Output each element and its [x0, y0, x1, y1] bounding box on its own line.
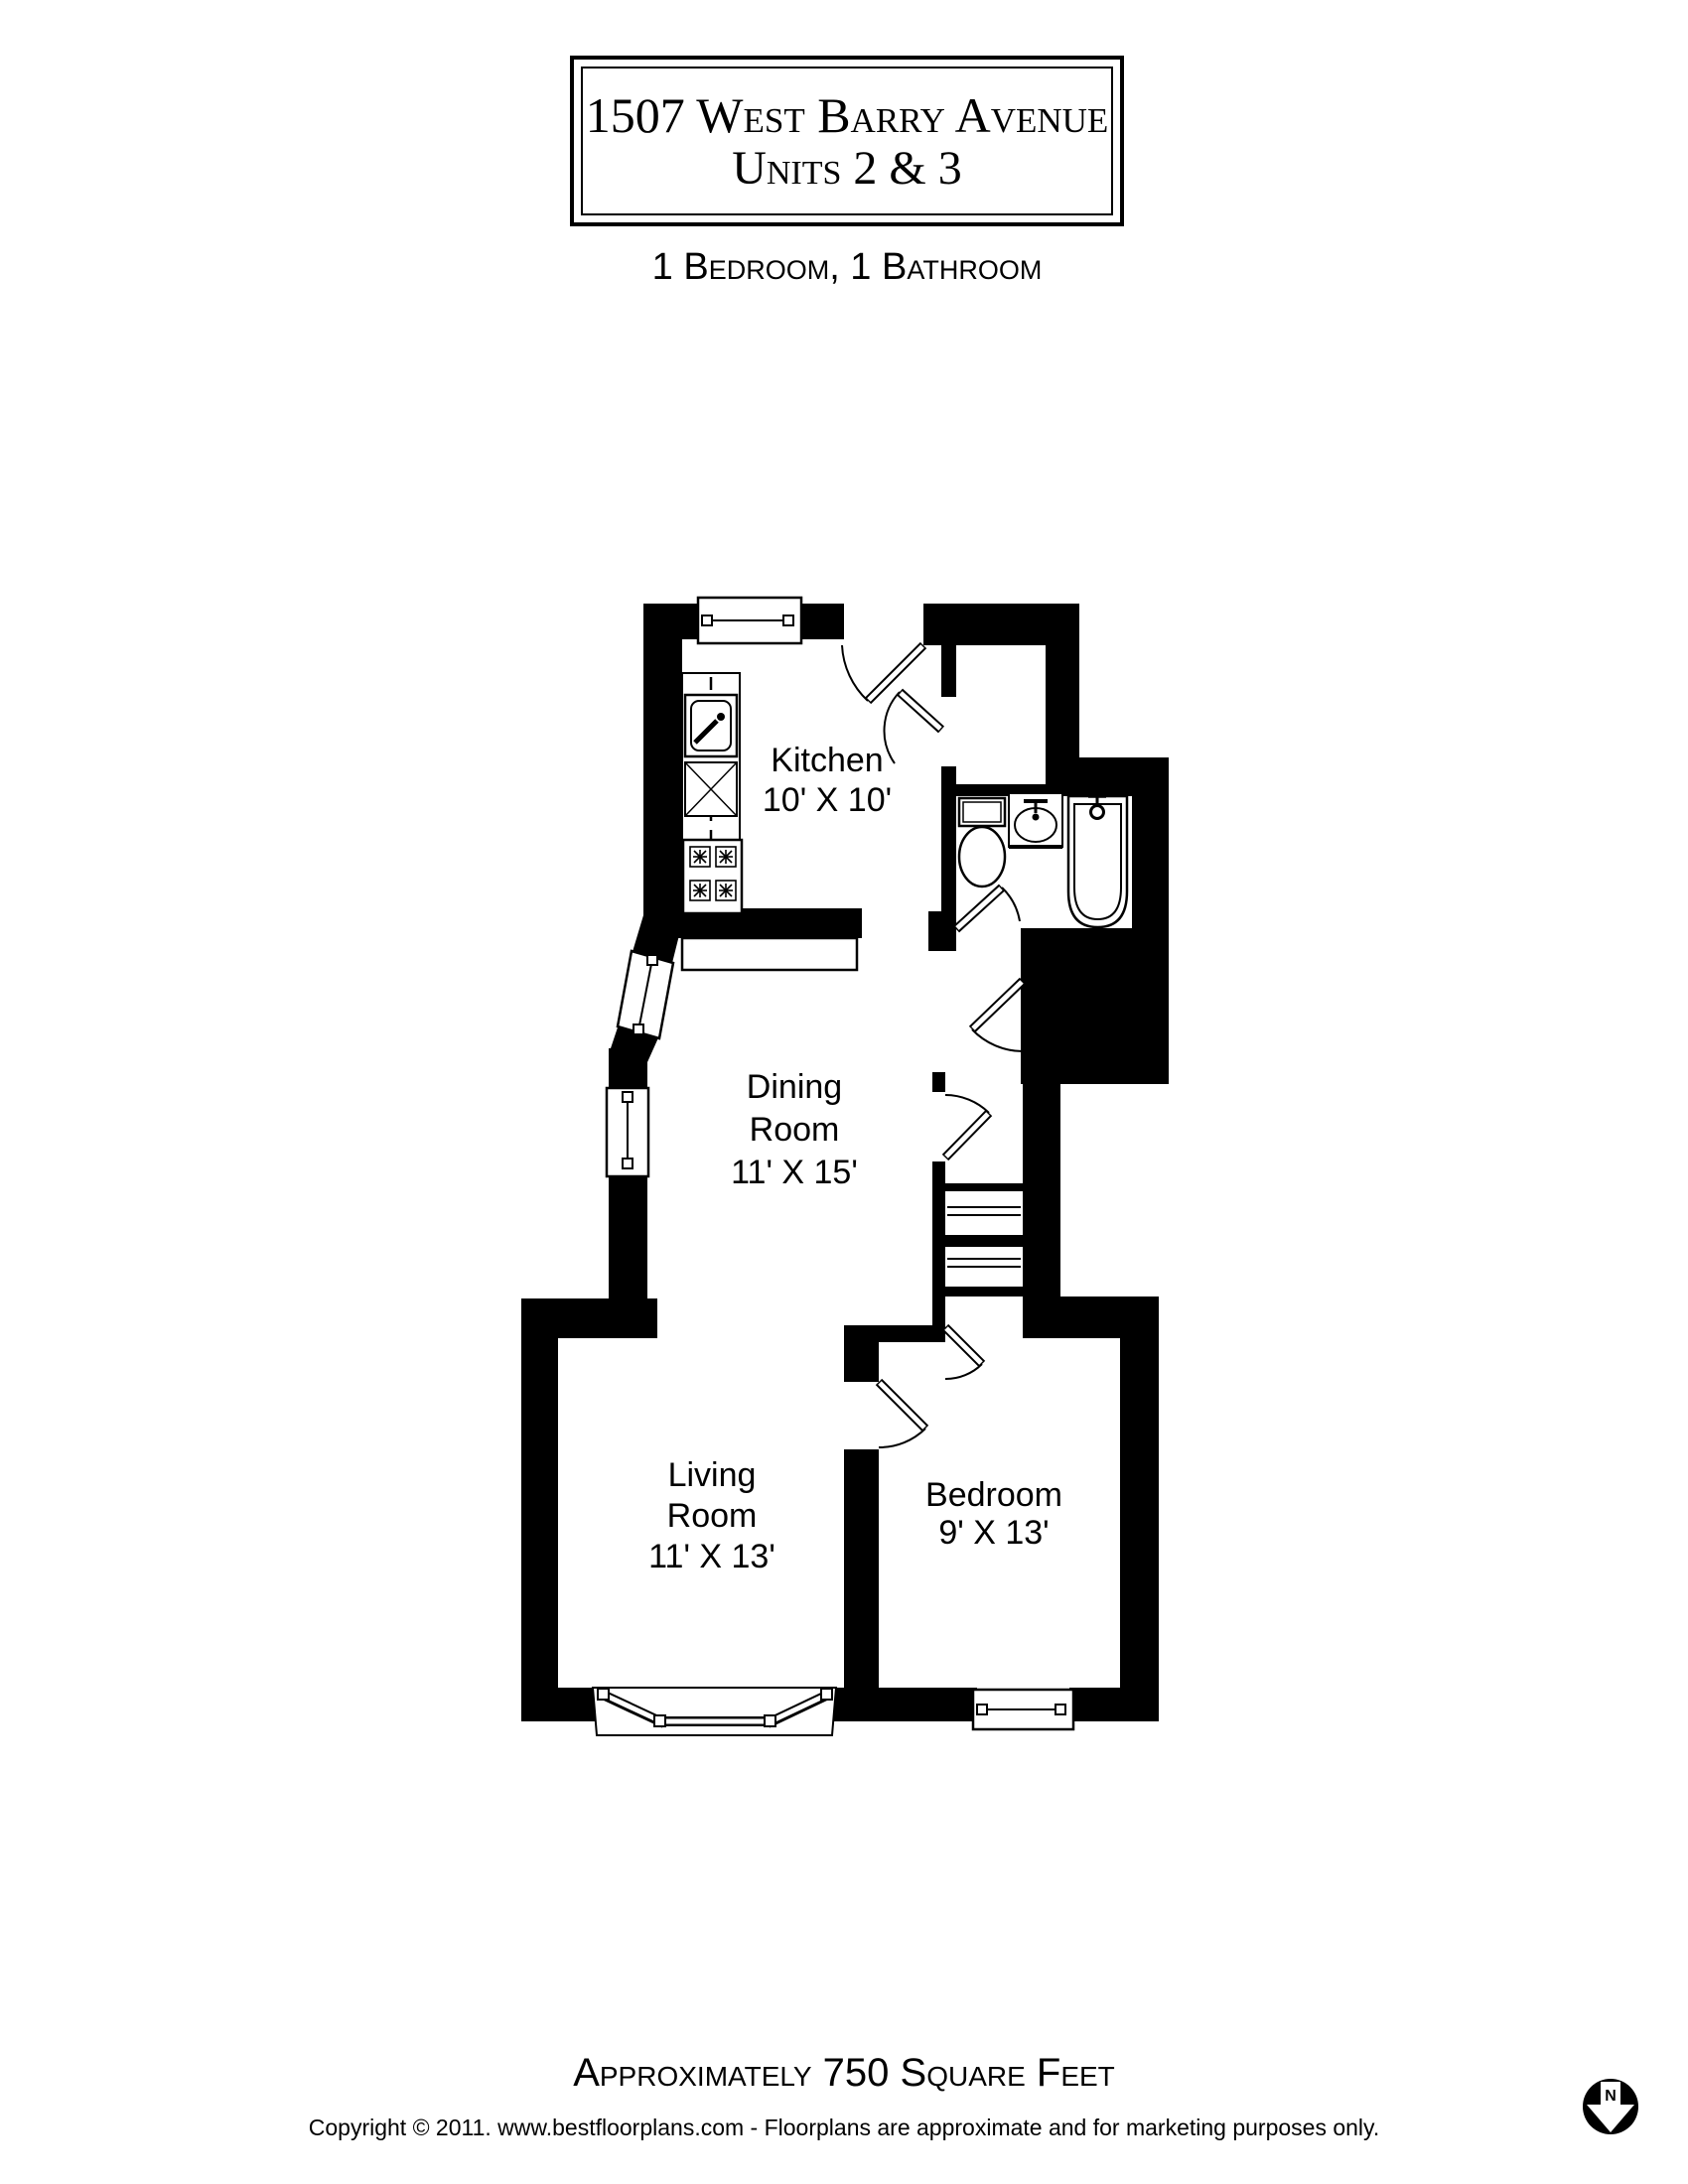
kitchen-window — [698, 598, 801, 643]
kitchen-label: Kitchen 10' X 10' — [763, 741, 892, 820]
window-stop — [1055, 1705, 1065, 1714]
wall-bedroom-top-right — [1023, 1297, 1159, 1338]
stove-box — [683, 840, 742, 913]
bedroom-door — [879, 1382, 925, 1447]
dishwasher-icon — [685, 762, 737, 816]
dining-dims: 11' X 15' — [731, 1152, 858, 1194]
window-stop — [633, 1024, 643, 1034]
living-name-line1: Living — [648, 1455, 775, 1496]
hall-door — [972, 981, 1023, 1051]
wall-bath-right — [1132, 796, 1169, 928]
window-stop — [765, 1715, 775, 1726]
wall-closet-right — [1046, 645, 1079, 784]
bathroom-door — [956, 887, 1020, 929]
wall-left-upper-stub — [609, 1048, 647, 1092]
sink-drain — [1033, 814, 1040, 821]
wall-closet-bottom-divider — [932, 1287, 1023, 1297]
bedroom-name: Bedroom — [925, 1476, 1062, 1514]
bedroom-window — [973, 1690, 1073, 1729]
living-name-line2: Room — [648, 1496, 775, 1537]
dining-name-line2: Room — [731, 1109, 858, 1152]
wall-bedroom-bottom-left — [879, 1688, 977, 1721]
floorplan-page: 1507 West Barry Avenue Units 2 & 3 1 Bed… — [0, 0, 1688, 2184]
wall-closet-top-divider — [932, 1183, 1023, 1191]
door-leaf-core — [946, 1114, 988, 1157]
wall-kitchen-left — [643, 604, 682, 923]
wall-kitchen-right-bottom-stub — [928, 911, 956, 951]
dining-name-line1: Dining — [731, 1066, 858, 1109]
kitchen-closet-door — [885, 692, 941, 763]
door-leaf-core — [880, 1383, 924, 1428]
bedroom-label: Bedroom 9' X 13' — [925, 1476, 1062, 1552]
hall-bedroom-door — [945, 1327, 982, 1379]
door-swing-arc — [879, 1429, 925, 1447]
dining-label: Dining Room 11' X 15' — [731, 1066, 858, 1194]
dining-diagonal-window — [618, 951, 673, 1038]
wall-top-mid — [799, 604, 844, 639]
sink-faucet-knob — [717, 713, 725, 721]
door-swing-arc — [1002, 887, 1020, 921]
window-stop — [654, 1715, 665, 1726]
wall-kitchen-bottom — [643, 908, 862, 938]
window-stop — [977, 1705, 987, 1714]
tub-faucet — [1091, 806, 1104, 819]
window-stop — [702, 615, 712, 625]
wall-top-right — [923, 604, 1079, 645]
bay-window — [593, 1688, 836, 1735]
window-stop — [647, 955, 657, 965]
wall-dining-bedroom — [844, 1325, 945, 1342]
wall-closet-mid-divider — [945, 1235, 1023, 1247]
door-swing-arc — [842, 645, 868, 701]
living-label: Living Room 11' X 13' — [648, 1455, 775, 1577]
square-footage-text: Approximately 750 Square Feet — [0, 2051, 1688, 2096]
door-swing-arc — [972, 1029, 1023, 1051]
bathtub-icon — [1068, 794, 1127, 927]
linen-closet-door — [945, 1095, 989, 1158]
sink-basin — [1015, 808, 1056, 842]
dining-counter — [682, 938, 857, 970]
kitchen-name: Kitchen — [763, 741, 892, 780]
stove-icon — [683, 840, 742, 913]
bathroom-sink-icon — [1009, 793, 1062, 847]
wall-hall-left-stub — [932, 1072, 945, 1092]
wall-bedroom-right — [1120, 1297, 1159, 1721]
copyright-text: Copyright © 2011. www.bestfloorplans.com… — [0, 2115, 1688, 2141]
entry-door — [842, 645, 923, 701]
door-leaf-core — [957, 888, 1001, 928]
door-swing-arc — [945, 1364, 982, 1379]
window-stop — [623, 1092, 633, 1102]
door-leaf-core — [946, 1328, 981, 1363]
wall-bath-bottom-block — [1021, 928, 1169, 1084]
window-stop — [598, 1689, 609, 1700]
door-leaf-core — [869, 646, 922, 700]
bedroom-dims: 9' X 13' — [925, 1514, 1062, 1552]
door-swing-arc — [945, 1095, 989, 1113]
kitchen-dims: 10' X 10' — [763, 780, 892, 820]
toilet-bowl — [959, 827, 1005, 887]
wall-bath-top-right — [1079, 757, 1169, 796]
wall-living-left — [521, 1298, 558, 1721]
door-leaf-core — [901, 693, 940, 729]
toilet-icon — [959, 798, 1005, 887]
dining-left-window — [607, 1088, 648, 1176]
living-dims: 11' X 13' — [648, 1537, 775, 1577]
window-stop — [821, 1689, 832, 1700]
window-stop — [783, 615, 793, 625]
wall-living-bottom-left — [521, 1688, 599, 1721]
wall-kitchen-right-upper — [941, 645, 956, 697]
kitchen-sink-icon — [685, 695, 737, 756]
window-stop — [623, 1159, 633, 1168]
wall-living-bedroom-lower — [844, 1449, 879, 1721]
door-leaf-core — [973, 982, 1022, 1028]
